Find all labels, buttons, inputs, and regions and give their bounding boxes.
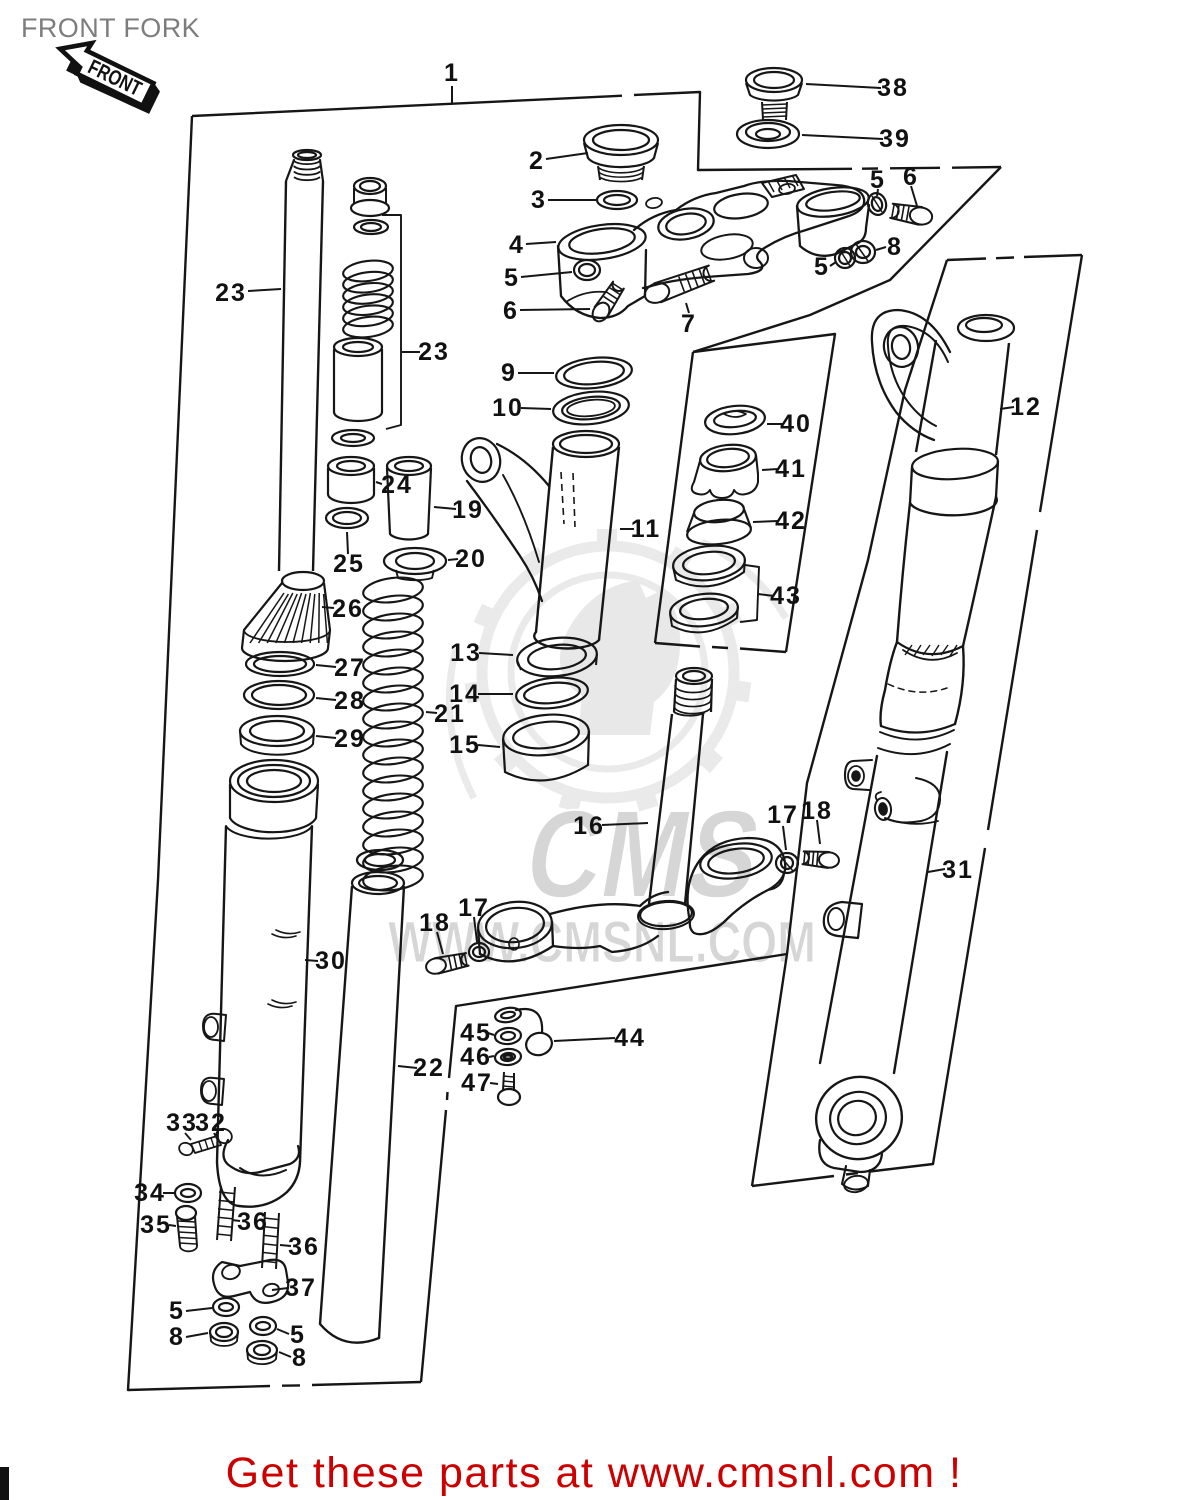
svg-text:18: 18 bbox=[419, 909, 451, 937]
svg-text:22: 22 bbox=[413, 1054, 445, 1082]
svg-text:8: 8 bbox=[887, 233, 903, 261]
svg-text:8: 8 bbox=[169, 1323, 185, 1351]
svg-text:17: 17 bbox=[767, 801, 799, 829]
svg-text:40: 40 bbox=[780, 410, 812, 438]
svg-text:4: 4 bbox=[509, 231, 525, 259]
svg-text:29: 29 bbox=[334, 725, 366, 753]
svg-text:2: 2 bbox=[529, 147, 545, 175]
svg-text:WWW.CMSNL.COM: WWW.CMSNL.COM bbox=[388, 910, 816, 975]
svg-text:28: 28 bbox=[334, 687, 366, 715]
svg-text:9: 9 bbox=[501, 359, 517, 387]
svg-text:5: 5 bbox=[169, 1297, 185, 1325]
svg-text:15: 15 bbox=[449, 731, 481, 759]
svg-text:47: 47 bbox=[461, 1069, 493, 1097]
svg-text:41: 41 bbox=[775, 455, 807, 483]
svg-text:37: 37 bbox=[285, 1274, 317, 1302]
svg-text:39: 39 bbox=[879, 125, 911, 153]
svg-text:38: 38 bbox=[877, 74, 909, 102]
svg-text:33: 33 bbox=[166, 1109, 198, 1137]
svg-text:30: 30 bbox=[315, 947, 347, 975]
svg-text:14: 14 bbox=[449, 680, 481, 708]
svg-text:32: 32 bbox=[195, 1109, 227, 1137]
svg-text:23: 23 bbox=[418, 338, 450, 366]
svg-text:11: 11 bbox=[631, 515, 661, 543]
svg-text:35: 35 bbox=[140, 1211, 172, 1239]
svg-text:31: 31 bbox=[942, 856, 974, 884]
svg-text:19: 19 bbox=[452, 496, 484, 524]
svg-text:36: 36 bbox=[237, 1208, 269, 1236]
svg-text:Get these parts at www.cmsnl.c: Get these parts at www.cmsnl.com ! bbox=[226, 1449, 963, 1497]
svg-text:42: 42 bbox=[775, 507, 807, 535]
svg-text:36: 36 bbox=[288, 1233, 320, 1261]
svg-text:10: 10 bbox=[492, 394, 524, 422]
svg-text:20: 20 bbox=[455, 545, 487, 573]
svg-text:25: 25 bbox=[333, 550, 365, 578]
svg-text:27: 27 bbox=[334, 654, 366, 682]
svg-text:13: 13 bbox=[450, 639, 482, 667]
svg-text:8: 8 bbox=[292, 1344, 308, 1372]
svg-text:26: 26 bbox=[332, 595, 364, 623]
svg-text:FRONT FORK: FRONT FORK bbox=[21, 13, 200, 43]
svg-text:46: 46 bbox=[460, 1043, 492, 1071]
svg-text:23: 23 bbox=[215, 279, 247, 307]
svg-text:6: 6 bbox=[503, 297, 519, 325]
svg-text:16: 16 bbox=[573, 812, 605, 840]
svg-text:34: 34 bbox=[134, 1179, 166, 1207]
svg-text:12: 12 bbox=[1010, 393, 1042, 421]
svg-text:1: 1 bbox=[444, 59, 460, 87]
svg-text:3: 3 bbox=[531, 186, 547, 214]
svg-text:44: 44 bbox=[614, 1024, 646, 1052]
svg-text:5: 5 bbox=[814, 253, 830, 281]
svg-text:5: 5 bbox=[504, 264, 520, 292]
svg-text:7: 7 bbox=[681, 310, 697, 338]
svg-text:43: 43 bbox=[770, 582, 802, 610]
